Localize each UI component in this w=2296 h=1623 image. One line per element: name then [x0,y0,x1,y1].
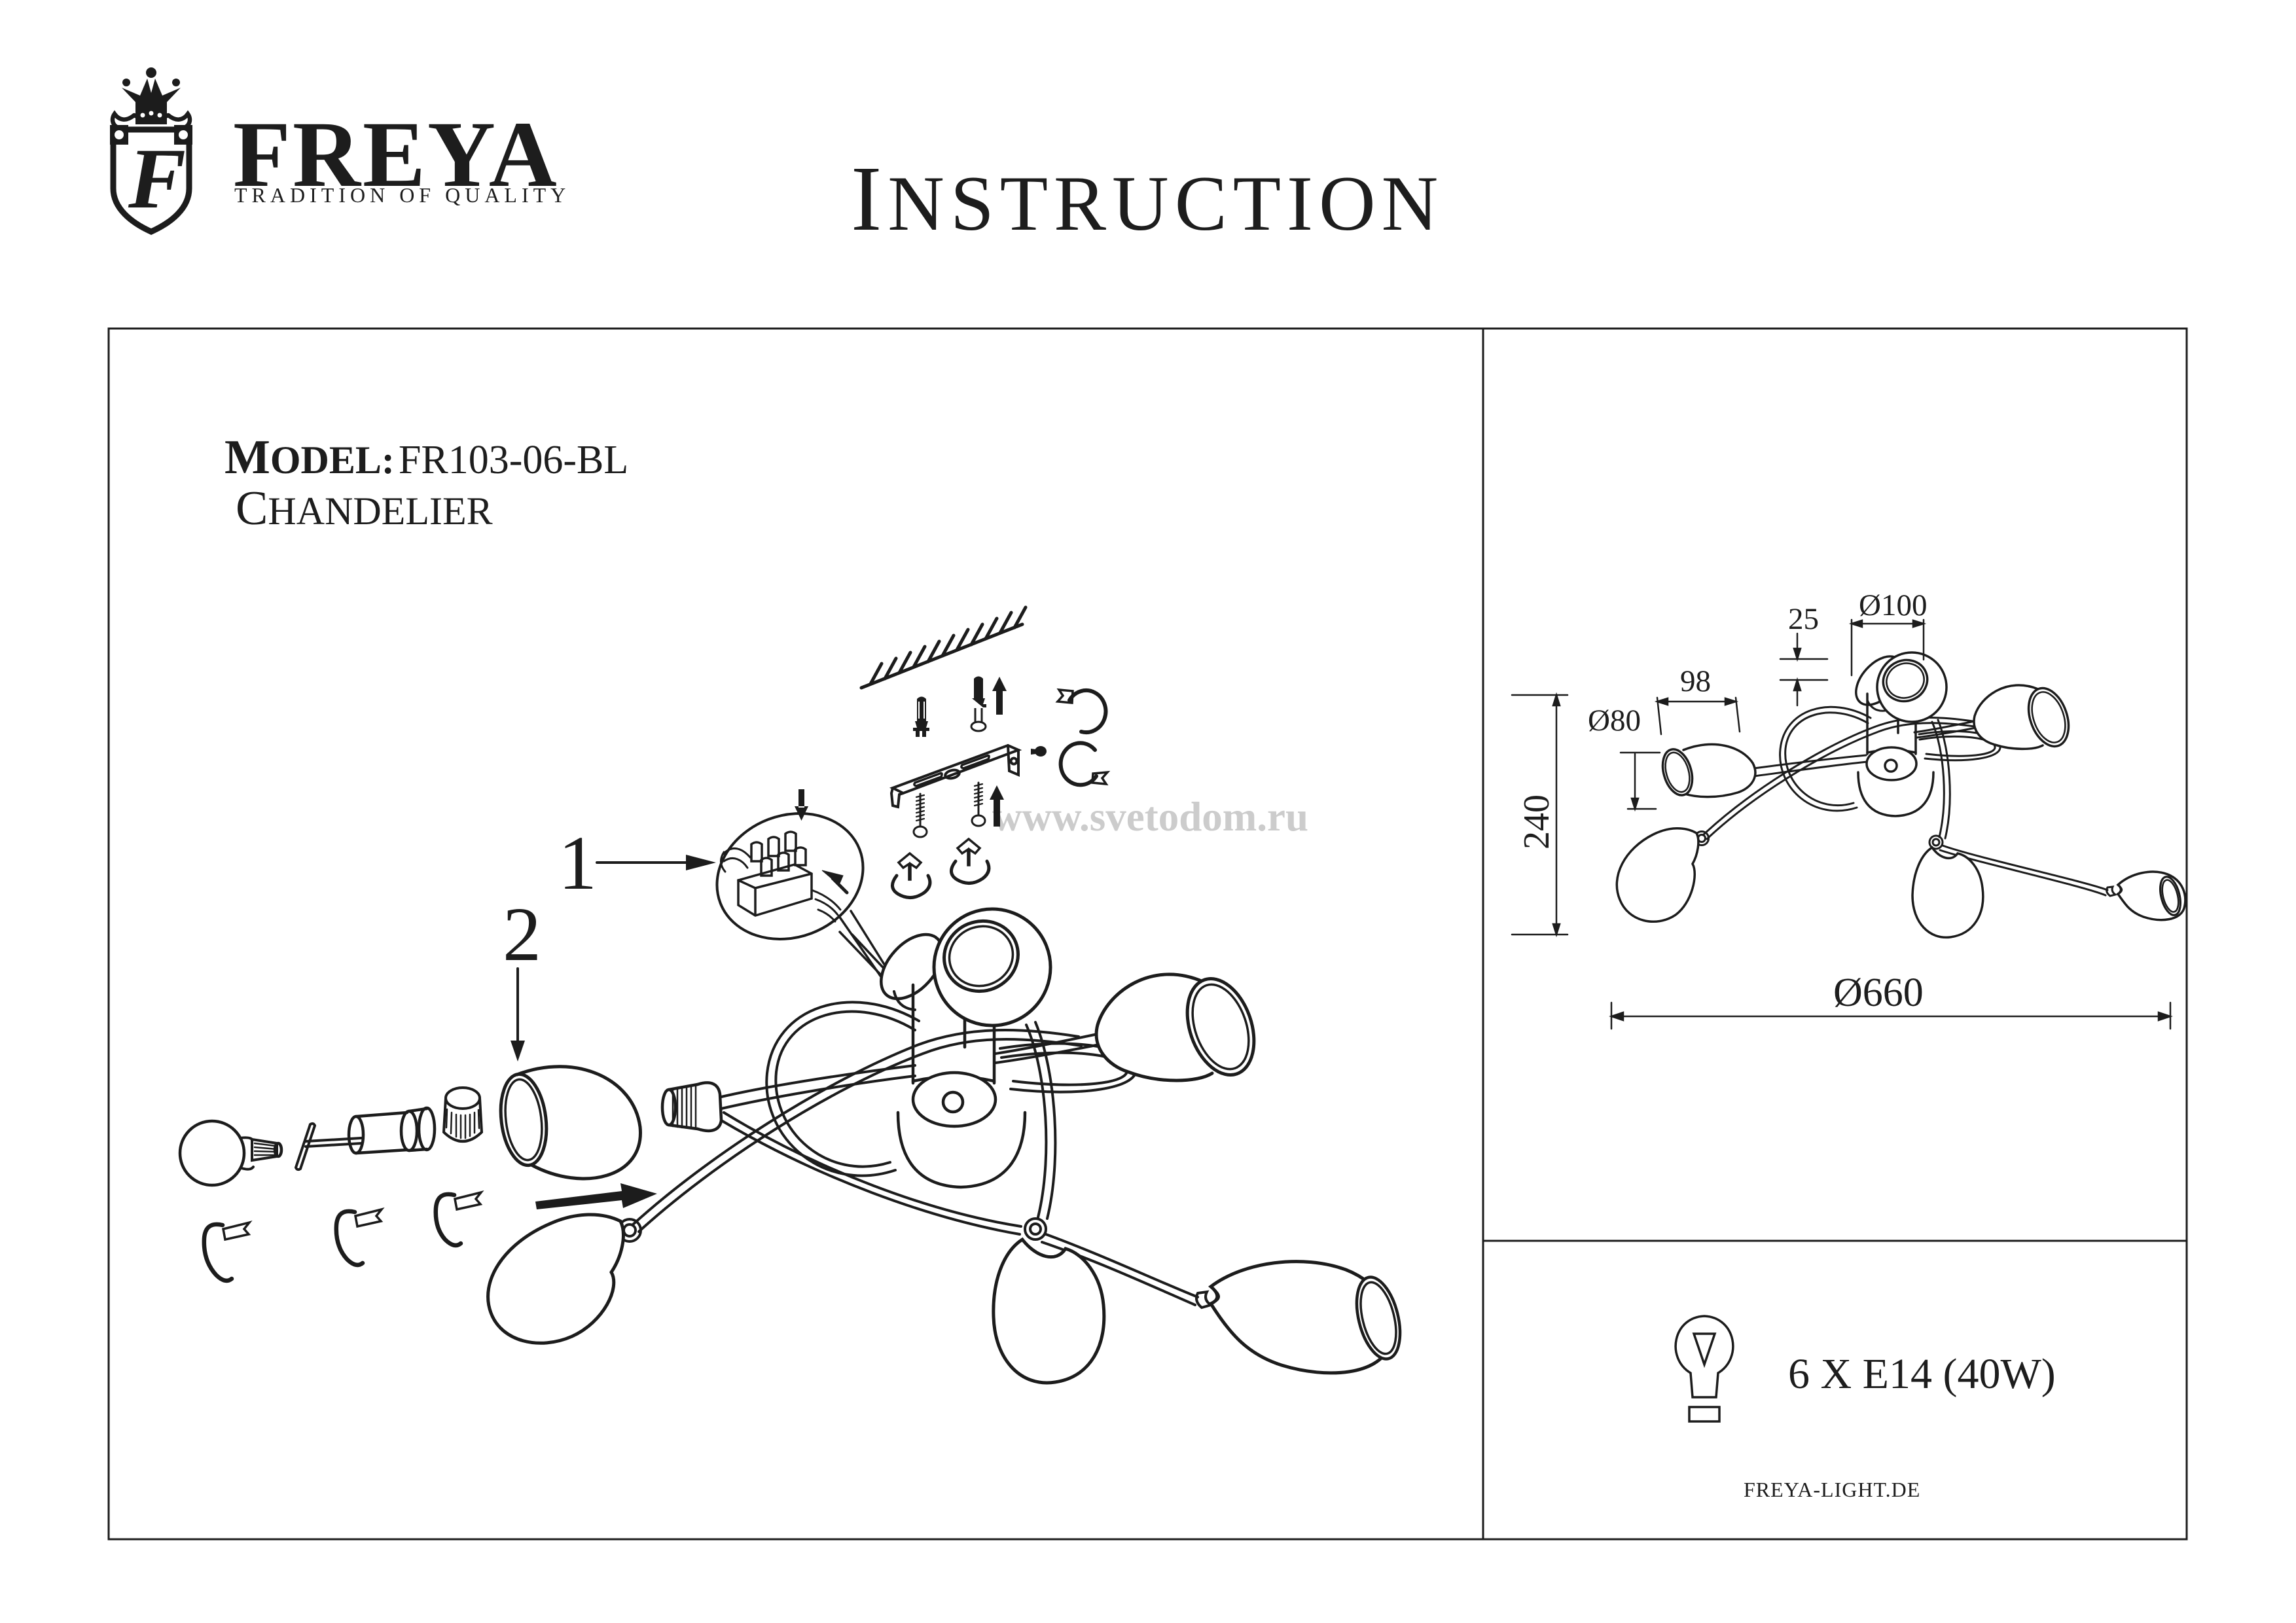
svg-text:6 X E14 (40W): 6 X E14 (40W) [1788,1350,2056,1398]
svg-text:25: 25 [1788,602,1819,636]
svg-text:1: 1 [558,820,597,906]
svg-text:98: 98 [1680,664,1711,698]
svg-text:240: 240 [1516,794,1557,849]
svg-text:CHANDELIER: CHANDELIER [236,482,493,535]
svg-text:INSTRUCTION: INSTRUCTION [851,147,1444,250]
svg-text:Ø660: Ø660 [1833,971,1924,1015]
svg-text:Ø80: Ø80 [1588,704,1641,738]
svg-text:MODEL:FR103-06-BL: MODEL:FR103-06-BL [224,431,628,484]
svg-text:2: 2 [503,891,541,977]
svg-text:F: F [128,130,186,226]
svg-text:www.svetodom.ru: www.svetodom.ru [992,794,1308,840]
svg-text:FREYA-LIGHT.DE: FREYA-LIGHT.DE [1744,1478,1920,1501]
svg-text:Ø100: Ø100 [1859,588,1927,622]
svg-text:TRADITION OF QUALITY: TRADITION OF QUALITY [234,183,570,207]
